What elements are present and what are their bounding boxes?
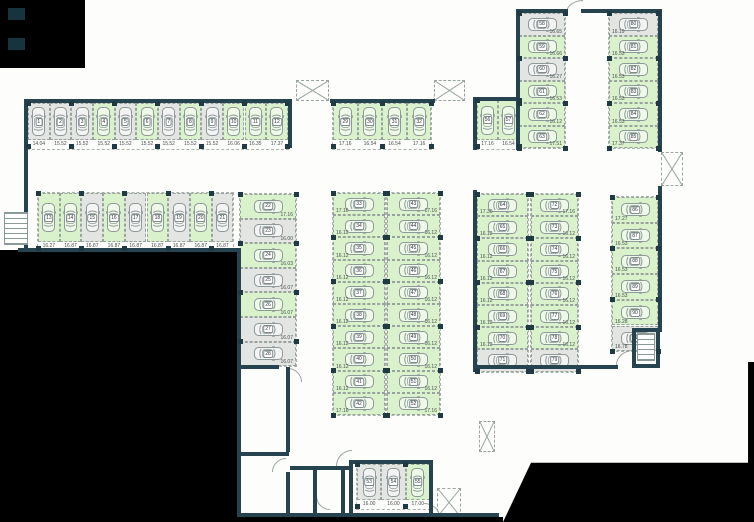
pillar — [385, 324, 390, 329]
shaft-x-icon — [435, 81, 464, 100]
wall — [288, 99, 292, 148]
space-area: 16.12 — [389, 387, 437, 393]
space-number: 22 — [263, 202, 273, 210]
wall — [352, 460, 432, 464]
door-arc-icon — [616, 350, 633, 365]
pillar — [475, 369, 480, 374]
parking-space[interactable]: 4 — [93, 103, 115, 140]
vent-shaft — [661, 152, 683, 186]
pillar — [79, 191, 84, 196]
pillar — [656, 349, 661, 354]
wall — [658, 186, 662, 332]
wall — [516, 9, 520, 150]
exterior-strip-bottom — [238, 517, 503, 522]
space-area: 16.12 — [336, 387, 388, 393]
space-number: 72 — [550, 201, 560, 209]
space-number: 89 — [630, 283, 640, 291]
space-area: 16.12 — [533, 321, 575, 327]
space-number: 60 — [537, 65, 547, 73]
space-area: 16.54 — [358, 142, 383, 148]
pillar — [294, 290, 299, 295]
pillar — [529, 236, 534, 241]
shaft-x-icon — [480, 422, 494, 451]
wall — [286, 472, 290, 515]
space-number: 58 — [537, 20, 547, 28]
door-arc-icon — [272, 458, 286, 472]
space-area: 16.00 — [242, 237, 293, 243]
space-area: 16.19 — [612, 30, 661, 36]
space-area: 16.12 — [336, 254, 388, 260]
parking-space[interactable]: 11 — [245, 103, 267, 140]
parking-space[interactable]: 12 — [266, 103, 288, 140]
parking-space[interactable]: 14 — [60, 193, 82, 242]
pillar — [199, 144, 204, 149]
space-number: 20 — [196, 214, 206, 222]
space-number: 46 — [409, 267, 419, 275]
pillar — [331, 324, 336, 329]
parking-space[interactable]: 17 — [125, 193, 147, 242]
space-area: 16.07 — [242, 336, 293, 342]
pillar — [285, 144, 290, 149]
pillar — [607, 11, 612, 16]
space-area: 16.12 — [389, 298, 437, 304]
space-number: 80 — [629, 20, 639, 28]
pillar — [331, 368, 336, 373]
space-number: 13 — [44, 214, 54, 222]
parking-space[interactable]: 21 — [212, 193, 234, 242]
vent-shaft — [296, 80, 329, 101]
space-number: 5 — [122, 118, 129, 126]
space-area: 16.12 — [336, 231, 388, 237]
space-area: 17.27 — [615, 217, 661, 223]
space-area: 16.12 — [336, 320, 388, 326]
parking-space[interactable]: 29 — [333, 103, 358, 140]
pillar — [79, 246, 84, 251]
wall — [477, 365, 618, 369]
pillar — [385, 191, 390, 196]
pillar — [294, 339, 299, 344]
space-number: 26 — [263, 301, 273, 309]
pillar — [285, 101, 290, 106]
space-number: 14 — [66, 214, 76, 222]
space-number: 39 — [354, 333, 364, 341]
space-number: 6 — [144, 118, 151, 126]
pillar — [563, 11, 568, 16]
pillar — [438, 235, 443, 240]
pillar — [242, 101, 247, 106]
space-number: 40 — [354, 355, 364, 363]
space-number: 44 — [409, 222, 419, 230]
space-number: 69 — [498, 312, 508, 320]
space-area: 16.03 — [242, 262, 293, 268]
space-number: 16 — [109, 214, 119, 222]
space-number: 10 — [229, 118, 239, 126]
pillar — [331, 279, 336, 284]
space-area: 17.16 — [389, 409, 437, 415]
space-area: 16.28 — [615, 320, 661, 326]
pillar — [166, 191, 171, 196]
space-number: 88 — [630, 257, 640, 265]
wall — [473, 97, 520, 101]
pillar — [36, 191, 41, 196]
space-number: 19 — [174, 214, 184, 222]
space-area: 17.16 — [242, 213, 293, 219]
parking-space[interactable]: 19 — [168, 193, 190, 242]
space-area: 16.54 — [382, 142, 407, 148]
space-number: 34 — [354, 222, 364, 230]
exterior-mass-bottom-left — [0, 250, 238, 522]
wall — [313, 470, 317, 515]
parking-space[interactable]: 8 — [180, 103, 202, 140]
pillar — [576, 280, 581, 285]
space-number: 49 — [409, 333, 419, 341]
pillar — [607, 146, 612, 151]
space-area: 17.16 — [533, 210, 575, 216]
pillar — [438, 324, 443, 329]
space-number: 2 — [57, 118, 64, 126]
space-area: 17.16 — [333, 142, 358, 148]
wall — [239, 365, 279, 369]
parking-space[interactable]: 10 — [223, 103, 245, 140]
space-area: 16.12 — [336, 342, 388, 348]
parking-space[interactable]: 16 — [103, 193, 125, 242]
pillar — [610, 195, 615, 200]
space-area: 16.53 — [615, 294, 661, 300]
vent-shaft — [434, 80, 465, 101]
stairs-icon — [637, 333, 655, 361]
pillar — [331, 235, 336, 240]
space-number: 43 — [409, 200, 419, 208]
pillar — [112, 144, 117, 149]
pillar — [238, 241, 243, 246]
pillar — [438, 413, 443, 418]
space-area: 16.53 — [612, 120, 661, 126]
space-number: 36 — [354, 267, 364, 275]
pillar — [475, 280, 480, 285]
space-number: 87 — [630, 232, 640, 240]
space-area: 16.12 — [389, 320, 437, 326]
wall — [286, 367, 290, 452]
wall — [636, 364, 660, 368]
pillar — [438, 368, 443, 373]
pillar — [529, 369, 534, 374]
space-area: 16.12 — [389, 231, 437, 237]
space-number: 82 — [629, 65, 639, 73]
space-number: 24 — [263, 251, 273, 259]
space-area: 17.51 — [521, 142, 562, 148]
space-number: 76 — [550, 290, 560, 298]
parking-space[interactable]: 53 — [357, 464, 381, 500]
parking-space[interactable]: 31 — [382, 103, 407, 140]
pillar — [209, 191, 214, 196]
pillar — [517, 101, 522, 106]
pillar — [242, 144, 247, 149]
pillar — [238, 192, 243, 197]
pillar — [475, 98, 480, 103]
space-number: 4 — [100, 118, 107, 126]
space-area: 16.12 — [533, 255, 575, 261]
pillar — [331, 101, 336, 106]
space-number: 29 — [341, 118, 351, 126]
parking-space[interactable]: 32 — [407, 103, 432, 140]
space-area: 17.16 — [389, 209, 437, 215]
space-area: 16.66 — [521, 52, 562, 58]
space-area: 15.52 — [158, 142, 180, 148]
pillar — [610, 349, 615, 354]
space-number: 62 — [537, 110, 547, 118]
parking-space[interactable]: 7 — [158, 103, 180, 140]
pillar — [656, 297, 661, 302]
space-number: 11 — [251, 118, 260, 126]
space-number: 31 — [390, 118, 400, 126]
pillar — [26, 144, 31, 149]
space-number: 85 — [629, 133, 639, 141]
pillar — [656, 101, 661, 106]
space-number: 65 — [498, 223, 508, 231]
stairs-icon — [4, 212, 28, 245]
pillar — [380, 101, 385, 106]
pillar — [238, 339, 243, 344]
space-area: 16.53 — [615, 242, 661, 248]
space-area: 16.12 — [480, 299, 531, 305]
space-number: 75 — [550, 268, 560, 276]
space-area: 16.12 — [389, 365, 437, 371]
pillar — [199, 101, 204, 106]
pillar — [26, 101, 31, 106]
parking-space[interactable]: 6 — [136, 103, 158, 140]
top-left-marker — [8, 8, 25, 20]
space-number: 51 — [409, 378, 419, 386]
pillar — [656, 246, 661, 251]
space-number: 1 — [35, 118, 42, 126]
space-area: 16.12 — [389, 342, 437, 348]
pillar — [607, 101, 612, 106]
space-number: 45 — [409, 244, 419, 252]
space-number: 28 — [263, 350, 273, 358]
parking-space[interactable]: 55 — [406, 464, 430, 500]
space-number: 63 — [537, 133, 547, 141]
space-area: 17.37 — [612, 142, 661, 148]
space-number: 8 — [187, 118, 194, 126]
space-area: 17.30 — [480, 210, 531, 216]
space-area: 15.52 — [115, 142, 137, 148]
parking-space[interactable]: 18 — [147, 193, 169, 242]
pillar — [475, 144, 480, 149]
space-number: 83 — [629, 88, 639, 96]
space-area: 16.53 — [615, 268, 661, 274]
wall — [237, 452, 289, 456]
space-number: 23 — [263, 227, 273, 235]
pillar — [69, 101, 74, 106]
parking-space[interactable]: 13 — [38, 193, 60, 242]
space-number: 41 — [354, 378, 364, 386]
space-number: 37 — [354, 289, 364, 297]
space-number: 79 — [550, 356, 560, 364]
space-area: 16.53 — [612, 75, 661, 81]
space-number: 35 — [354, 244, 364, 252]
pillar — [656, 146, 661, 151]
space-number: 78 — [550, 334, 560, 342]
pillar — [385, 279, 390, 284]
space-number: 53 — [364, 478, 374, 486]
space-number: 42 — [354, 400, 364, 408]
pillar — [209, 246, 214, 251]
pillar — [294, 192, 299, 197]
space-number: 84 — [629, 110, 639, 118]
pillar — [331, 144, 336, 149]
space-number: 47 — [409, 289, 419, 297]
space-area: 16.53 — [612, 97, 661, 103]
pillar — [331, 413, 336, 418]
door-arc-icon — [288, 368, 302, 382]
pillar — [529, 280, 534, 285]
pillar — [607, 56, 612, 61]
space-area: 16.12 — [533, 299, 575, 305]
space-number: 86 — [630, 206, 640, 214]
space-number: 33 — [354, 200, 364, 208]
space-number: 57 — [504, 116, 514, 124]
pillar — [403, 504, 408, 509]
pillar — [475, 325, 480, 330]
space-area: 17.16 — [336, 409, 388, 415]
space-area: 16.12 — [480, 277, 531, 283]
parking-space[interactable]: 3 — [71, 103, 93, 140]
pillar — [69, 144, 74, 149]
door-arc-icon — [316, 496, 330, 510]
space-area: 17.16 — [336, 209, 388, 215]
space-number: 77 — [550, 312, 560, 320]
pillar — [656, 11, 661, 16]
space-number: 68 — [498, 290, 508, 298]
wall — [632, 328, 636, 368]
wall — [349, 460, 353, 515]
space-number: 52 — [409, 400, 419, 408]
space-number: 30 — [365, 118, 375, 126]
space-area: 16.07 — [242, 286, 293, 292]
space-number: 38 — [354, 311, 364, 319]
pillar — [517, 146, 522, 151]
pillar — [517, 56, 522, 61]
space-area: 16.12 — [533, 232, 575, 238]
pillar — [576, 325, 581, 330]
pillar — [529, 325, 534, 330]
space-area: 16.12 — [336, 365, 388, 371]
parking-space[interactable]: 30 — [358, 103, 383, 140]
space-number: 3 — [79, 118, 86, 126]
space-area: 16.12 — [533, 277, 575, 283]
parking-space[interactable]: 1 — [28, 103, 50, 140]
space-number: 55 — [413, 478, 423, 486]
pillar — [155, 144, 160, 149]
pillar — [380, 144, 385, 149]
space-number: 81 — [629, 43, 639, 51]
space-number: 73 — [550, 223, 560, 231]
space-number: 15 — [87, 214, 97, 222]
pillar — [355, 462, 360, 467]
parking-space[interactable]: 56 — [477, 100, 498, 140]
parking-space[interactable]: 20 — [190, 193, 212, 242]
space-area: 16.35 — [245, 142, 267, 148]
wall — [429, 460, 433, 514]
shaft-x-icon — [662, 153, 682, 185]
space-number: 18 — [153, 214, 163, 222]
space-number: 27 — [263, 325, 273, 333]
pillar — [166, 246, 171, 251]
pillar — [385, 368, 390, 373]
parking-space[interactable]: 9 — [201, 103, 223, 140]
pillar — [475, 236, 480, 241]
space-area: 16.53 — [521, 97, 562, 103]
space-area: 15.52 — [71, 142, 93, 148]
vent-shaft — [479, 421, 495, 452]
space-number: 9 — [209, 118, 216, 126]
parking-space[interactable]: 5 — [115, 103, 137, 140]
space-number: 66 — [498, 245, 508, 253]
wall — [18, 248, 241, 252]
space-area: 16.00 — [357, 502, 381, 508]
wall — [658, 9, 662, 152]
space-area: 16.12 — [336, 298, 388, 304]
pillar — [438, 191, 443, 196]
space-area: 16.12 — [480, 255, 531, 261]
pillar — [610, 297, 615, 302]
pillar — [385, 413, 390, 418]
parking-space[interactable]: 15 — [81, 193, 103, 242]
wall — [581, 9, 662, 13]
parking-space[interactable]: 54 — [381, 464, 405, 500]
space-number: 71 — [498, 356, 508, 364]
pillar — [122, 246, 127, 251]
pillar — [610, 246, 615, 251]
space-area: 16.12 — [533, 343, 575, 349]
top-left-marker — [8, 38, 25, 50]
wall — [341, 470, 345, 515]
space-number: 50 — [409, 355, 419, 363]
pillar — [656, 195, 661, 200]
pillar — [529, 192, 534, 197]
space-number: 25 — [263, 276, 273, 284]
floor-plan: 114.04215.52315.52415.52515.52615.52715.… — [0, 0, 754, 522]
space-area: 16.12 — [521, 120, 562, 126]
space-area: 16.65 — [521, 30, 562, 36]
pillar — [429, 101, 434, 106]
pillar — [563, 56, 568, 61]
pillar — [385, 235, 390, 240]
pillar — [429, 144, 434, 149]
pillar — [155, 101, 160, 106]
space-area: 14.04 — [28, 142, 50, 148]
pillar — [576, 369, 581, 374]
parking-space[interactable]: 2 — [50, 103, 72, 140]
space-area: 16.53 — [612, 52, 661, 58]
space-number: 74 — [550, 245, 560, 253]
exterior-mass-bottom-right — [495, 362, 754, 522]
space-number: 12 — [272, 118, 282, 126]
space-number: 17 — [131, 214, 141, 222]
pillar — [517, 11, 522, 16]
space-number: 21 — [218, 214, 228, 222]
shaft-x-icon — [438, 489, 460, 516]
space-area: 16.12 — [480, 343, 531, 349]
space-area: 17.16 — [477, 142, 498, 148]
shaft-x-icon — [297, 81, 328, 100]
pillar — [563, 101, 568, 106]
pillar — [475, 192, 480, 197]
pillar — [576, 236, 581, 241]
space-number: 90 — [630, 309, 640, 317]
space-area: 16.12 — [389, 276, 437, 282]
space-area: 16.12 — [336, 276, 388, 282]
